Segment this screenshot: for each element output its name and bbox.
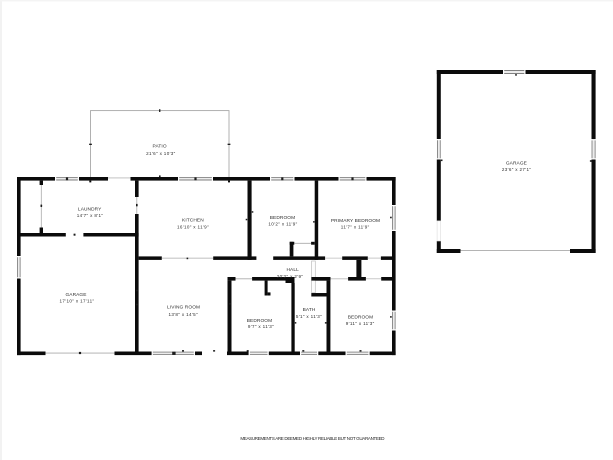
svg-text:14'7" x 8'1": 14'7" x 8'1" [77,213,104,218]
svg-text:KITCHEN: KITCHEN [182,217,204,223]
svg-text:PRIMARY BEDROOM: PRIMARY BEDROOM [331,218,380,224]
svg-text:16'10" x 11'9": 16'10" x 11'9" [177,225,209,230]
svg-text:13'8" x 14'5": 13'8" x 14'5" [168,312,198,317]
svg-text:GARAGE: GARAGE [65,292,86,298]
svg-text:17'10" x 17'11": 17'10" x 17'11" [60,299,95,304]
svg-text:21'6" x 10'3": 21'6" x 10'3" [146,151,176,156]
svg-text:9'11" x 11'3": 9'11" x 11'3" [346,321,375,326]
svg-text:PATIO: PATIO [153,143,167,149]
svg-text:11'7" x 11'9": 11'7" x 11'9" [341,225,370,230]
svg-text:10'2" x 11'9": 10'2" x 11'9" [268,221,297,226]
svg-text:LAUNDRY: LAUNDRY [78,206,102,212]
svg-text:23'6" x 27'1": 23'6" x 27'1" [502,167,532,172]
svg-text:HALL: HALL [286,267,299,273]
svg-text:LIVING ROOM: LIVING ROOM [167,304,200,310]
svg-text:MEASUREMENTS ARE DEEMED HIGHLY: MEASUREMENTS ARE DEEMED HIGHLY RELIABLE … [240,436,385,441]
svg-text:BEDROOM: BEDROOM [348,315,374,321]
svg-text:5'1" x 11'3": 5'1" x 11'3" [296,314,322,319]
svg-text:BEDROOM: BEDROOM [270,215,296,221]
svg-text:9'7" x 11'3": 9'7" x 11'3" [248,324,274,329]
svg-text:BATH: BATH [303,307,316,313]
svg-text:20'2" x 2'9": 20'2" x 2'9" [277,274,304,279]
svg-text:GARAGE: GARAGE [506,160,527,166]
